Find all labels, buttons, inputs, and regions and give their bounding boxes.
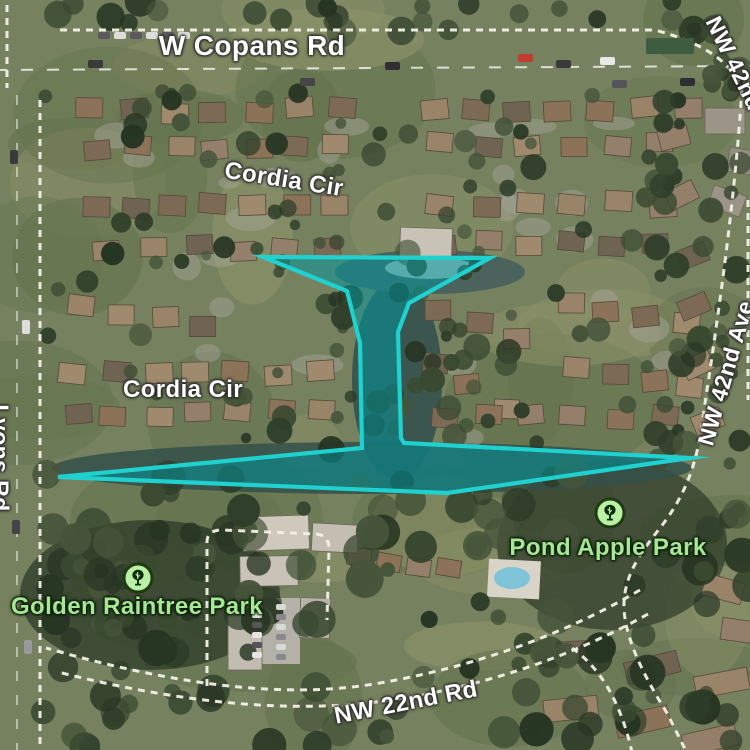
tree-icon[interactable] [595,498,626,529]
satellite-imagery [0,0,750,750]
tree-icon[interactable] [123,563,154,594]
map-canvas[interactable]: W Copans Rd Cordia Cir Cordia Cir NW 42n… [0,0,750,750]
